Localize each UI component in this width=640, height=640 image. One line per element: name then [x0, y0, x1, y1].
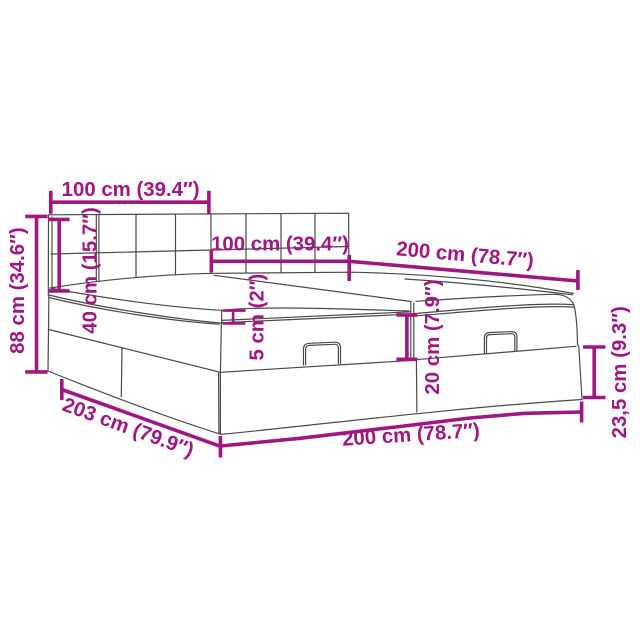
svg-text:100 cm (39.4″): 100 cm (39.4″) — [62, 179, 200, 201]
svg-text:23,5 cm (9.3″): 23,5 cm (9.3″) — [609, 306, 631, 438]
svg-text:100 cm (39.4″): 100 cm (39.4″) — [211, 234, 349, 256]
svg-text:20 cm (7.9″): 20 cm (7.9″) — [422, 279, 444, 394]
svg-text:40 cm (15.7″): 40 cm (15.7″) — [79, 207, 101, 334]
svg-text:5 cm (2″): 5 cm (2″) — [247, 274, 269, 361]
svg-text:88 cm (34.6″): 88 cm (34.6″) — [7, 227, 29, 354]
